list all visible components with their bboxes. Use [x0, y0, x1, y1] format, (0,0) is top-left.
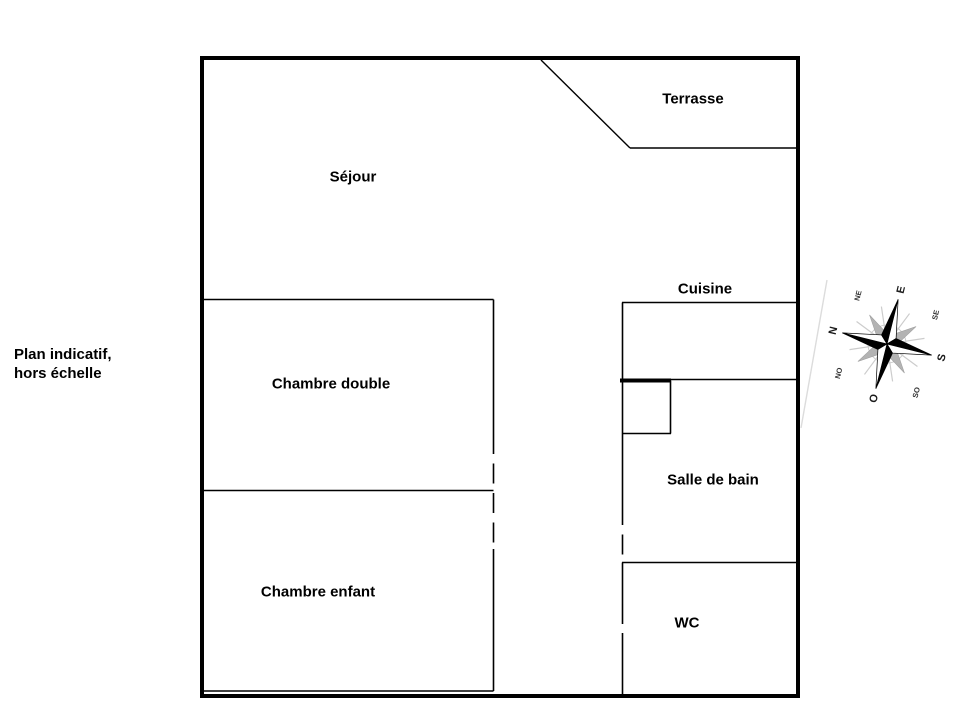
room-label-cuisine: Cuisine [678, 281, 732, 298]
room-label-terrasse: Terrasse [662, 91, 723, 108]
floor-plan-drawing: N E S O NE SE SO NO [0, 0, 960, 720]
compass-label-so: SO [911, 386, 922, 399]
compass-main-star [831, 288, 943, 400]
paper-crease-line [801, 280, 827, 428]
room-label-chambre-enfant: Chambre enfant [261, 584, 375, 601]
floor-plan-page: Plan indicatif, hors échelle [0, 0, 960, 720]
compass-label-ne: NE [852, 289, 863, 301]
compass-label-n: N [827, 325, 841, 336]
room-label-salle-de-bain: Salle de bain [667, 472, 759, 489]
compass-label-no: NO [833, 366, 844, 379]
compass-label-o: O [867, 393, 881, 405]
room-label-sejour: Séjour [330, 169, 377, 186]
compass-label-se: SE [930, 309, 941, 321]
compass-rose: N E S O NE SE SO NO [813, 271, 960, 417]
terrasse-diagonal-wall [541, 60, 630, 148]
compass-label-s: S [935, 353, 948, 363]
room-label-chambre-double: Chambre double [272, 376, 390, 393]
room-label-wc: WC [675, 615, 700, 632]
compass-label-e: E [895, 285, 908, 295]
